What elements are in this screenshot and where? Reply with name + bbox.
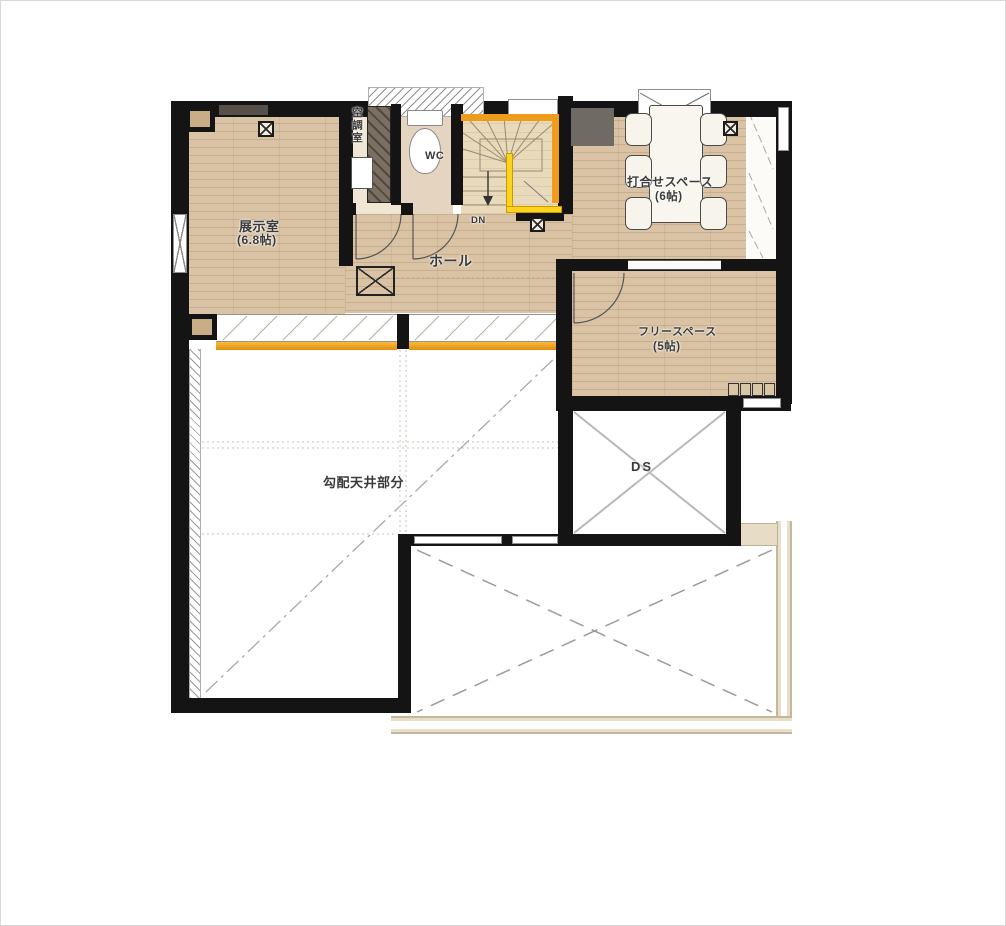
- exhibition-wall-equipment: [219, 105, 268, 115]
- duct-space-label: DS: [631, 459, 653, 474]
- meeting-table: [649, 105, 703, 223]
- free-space-area: (5帖): [653, 338, 681, 354]
- wall-left: [171, 101, 189, 713]
- vent-symbol-meeting: [723, 121, 738, 136]
- right-wall-window: [778, 107, 789, 151]
- linework-overlay: [1, 1, 1006, 926]
- meeting-gray-cabinet: [571, 108, 614, 146]
- wall-free-left: [556, 259, 572, 411]
- balcony-window-2: [512, 536, 558, 544]
- stair-handrail-post-yellow: [506, 153, 513, 213]
- wall-duct-left: [558, 399, 573, 546]
- wall-duct-bottom: [558, 534, 741, 546]
- wall-window-mullion: [397, 314, 409, 349]
- column-bottom-left: [187, 314, 217, 340]
- stair-rail-right-orange: [552, 114, 559, 203]
- wall-bottom: [171, 698, 411, 713]
- wall-duct-right: [726, 399, 741, 546]
- meeting-space-area: (6帖): [655, 188, 683, 204]
- free-space-counter-unit: [728, 383, 775, 396]
- wall-aircon-wc: [391, 104, 401, 205]
- balcony-cross: [417, 550, 772, 712]
- chair: [625, 113, 652, 146]
- wall-balcony-left: [398, 534, 411, 713]
- wall-stub-1: [339, 203, 356, 215]
- left-wall-window: [173, 214, 187, 273]
- stairs-dn-label: DN: [471, 215, 486, 226]
- toilet-tank: [407, 110, 443, 126]
- column-top-left: [185, 106, 215, 132]
- floorplan-canvas: 展示室 (6.8帖) 空調室 WC DN ホール 打合せスペース (6帖) フリ…: [0, 0, 1006, 926]
- balcony-window-1: [414, 536, 502, 544]
- vent-symbol-exhibition: [258, 121, 274, 137]
- hall-label: ホール: [429, 251, 473, 271]
- stair-down-arrow: [483, 171, 493, 206]
- stair-handrail-bar-yellow: [506, 206, 562, 213]
- free-space-label: フリースペース: [638, 323, 717, 339]
- wall-stub-2: [401, 203, 413, 215]
- free-space-bottom-window: [743, 398, 781, 408]
- chair: [625, 197, 652, 230]
- aircon-room-label: 空調室: [350, 107, 365, 145]
- meeting-free-cased-opening: [628, 260, 721, 270]
- top-window-stairs: [508, 99, 558, 115]
- sloped-ceiling-label: 勾配天井部分: [323, 472, 404, 491]
- sloped-ceiling-lines: [202, 350, 562, 697]
- aircon-equipment-box: [351, 157, 373, 189]
- floor-hatch-symbol-hall: [356, 266, 395, 296]
- wc-label: WC: [425, 150, 444, 162]
- stair-rail-top-orange: [461, 114, 558, 121]
- exhibition-room-area: (6.8帖): [237, 231, 277, 248]
- chair: [700, 197, 727, 230]
- vent-symbol-stairs: [530, 217, 545, 232]
